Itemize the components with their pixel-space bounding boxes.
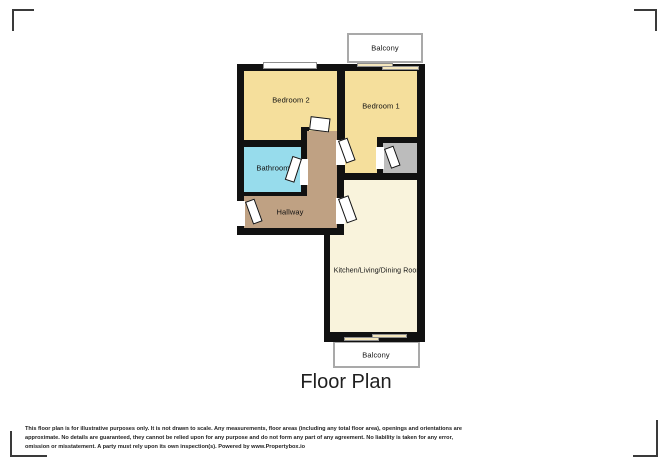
bathroom-label: Bathroom [256, 164, 289, 173]
balcony-top-sliding-door-panel [382, 66, 419, 70]
floor-plan-page: Bedroom 2 Bedroom 1 Bathroom Hallway Kit… [0, 0, 668, 467]
disclaimer-line-2: approximate. No details are guaranteed, … [25, 434, 462, 443]
disclaimer-text: This floor plan is for illustrative purp… [25, 425, 462, 452]
balcony-bottom-sliding-door-panel [372, 334, 407, 338]
balcony-bottom-label: Balcony [362, 351, 389, 360]
bedroom-2-door-leaf [309, 116, 331, 132]
balcony-top-label: Balcony [371, 44, 398, 53]
room-kitchen-living-dining-extension [330, 235, 344, 332]
crop-mark-top-left [12, 9, 34, 31]
hallway-label: Hallway [277, 208, 304, 217]
bedroom-2-window [263, 62, 317, 69]
bathroom-door-opening [300, 159, 308, 185]
page-title: Floor Plan [246, 371, 446, 394]
bedroom-1-label: Bedroom 1 [362, 102, 400, 111]
disclaimer-line-1: This floor plan is for illustrative purp… [25, 425, 462, 434]
bedroom-2-label: Bedroom 2 [272, 96, 310, 105]
kitchen-living-dining-label: Kitchen/Living/Dining Room [334, 268, 423, 275]
front-door-opening [236, 201, 245, 226]
storage-door-opening [376, 147, 384, 169]
crop-mark-bottom-right [633, 420, 658, 457]
room-kitchen-living-dining [344, 180, 417, 332]
disclaimer-line-3: omission or misstatement. A party must r… [25, 443, 462, 452]
crop-mark-top-right [634, 9, 657, 31]
